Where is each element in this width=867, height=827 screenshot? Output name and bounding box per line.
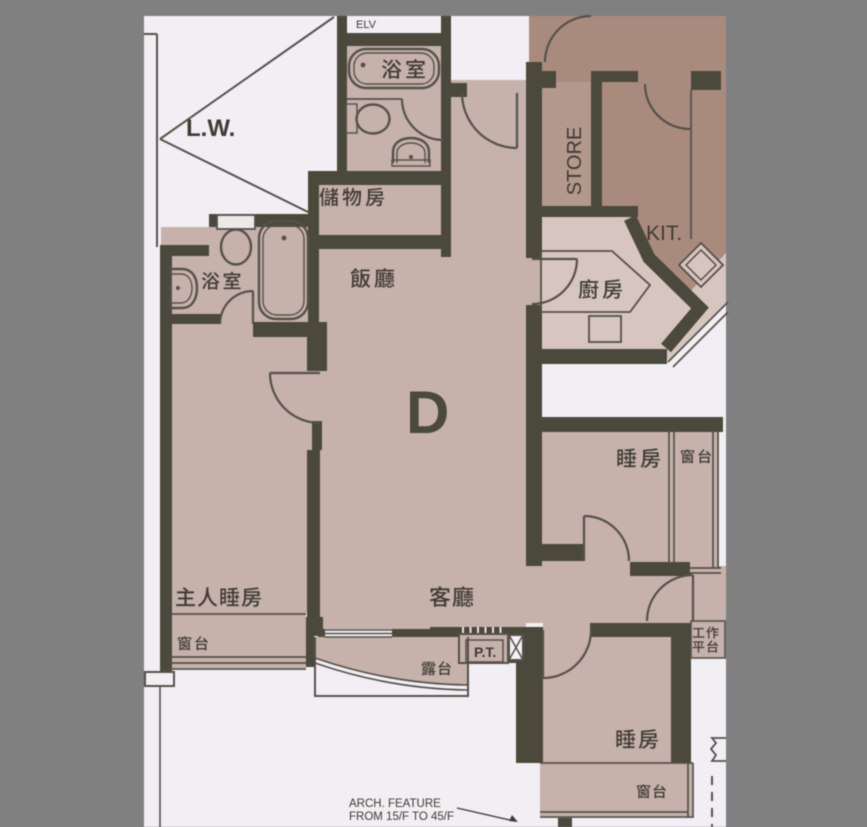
svg-text:FROM 15/F TO 45/F: FROM 15/F TO 45/F [349, 811, 454, 823]
svg-text:ARCH. FEATURE: ARCH. FEATURE [349, 798, 441, 810]
svg-text:STORE: STORE [564, 127, 586, 196]
svg-text:P.T.: P.T. [474, 644, 496, 660]
svg-text:L.W.: L.W. [186, 115, 235, 142]
svg-text:KIT.: KIT. [646, 222, 682, 245]
svg-text:ELV: ELV [356, 19, 377, 31]
svg-text:D: D [406, 379, 449, 446]
